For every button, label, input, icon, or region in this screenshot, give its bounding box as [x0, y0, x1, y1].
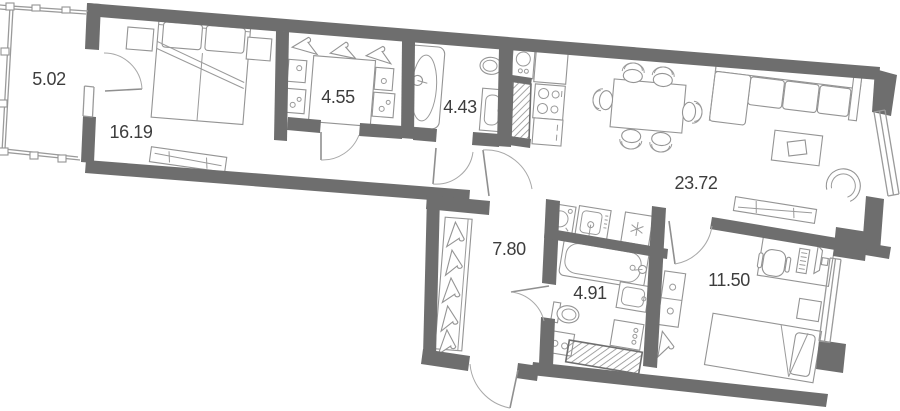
bath-cabinet-icon [610, 320, 644, 351]
room-label-wardrobe: 4.55 [321, 87, 355, 107]
room-label-balcony: 5.02 [32, 69, 66, 89]
coffee-table-icon [771, 130, 822, 166]
hanger-icon [658, 331, 676, 359]
nightstand-icon [797, 298, 822, 321]
room-label-bedroom2: 11.50 [708, 270, 750, 290]
nightstand-icon [246, 37, 272, 61]
balcony-door [104, 53, 142, 91]
furniture-layer [126, 17, 865, 382]
wardrobe-door [321, 132, 359, 160]
kitchen-counter-icon [534, 50, 568, 84]
bedroom-window [83, 86, 94, 117]
floor-plan-canvas: 5.02 16.19 4.55 4.43 23.72 7.80 4.91 11.… [0, 0, 900, 411]
toilet-icon [551, 302, 581, 326]
room-label-bathroom: 4.43 [443, 97, 477, 117]
bathroom2-door [511, 286, 549, 321]
room-label-bedroom: 16.19 [109, 122, 152, 142]
shelf-icon [372, 92, 395, 118]
dining-table-icon [610, 79, 686, 133]
room-label-bathroom2: 4.91 [573, 283, 607, 303]
single-bed-icon [704, 313, 821, 382]
chair-icon [649, 132, 673, 153]
hanger-icon [330, 39, 358, 58]
tv-stand-icon [733, 197, 816, 224]
living-room-window [874, 110, 899, 196]
room-label-hallway: 7.80 [492, 239, 526, 259]
fridge-icon [621, 212, 653, 246]
hall-closet-icon [434, 217, 472, 360]
shelf-icon [374, 67, 394, 90]
chair-icon [619, 129, 643, 150]
kitchen-cabinet-icon [532, 118, 563, 146]
bedroom2-door [669, 221, 712, 264]
hanger-icon [292, 34, 321, 55]
armchair-icon [823, 164, 865, 203]
hallway-door [483, 150, 532, 196]
floor-plan-page: 5.02 16.19 4.55 4.43 23.72 7.80 4.91 11.… [0, 0, 900, 411]
shelf-icon [287, 59, 307, 82]
entry-door [470, 364, 518, 408]
chair-icon [592, 88, 613, 112]
nightstand-icon [126, 27, 154, 51]
bathroom-door [433, 148, 473, 184]
stove-icon [533, 84, 566, 120]
sink-icon [616, 282, 650, 313]
double-bed-icon [151, 17, 251, 124]
room-label-living-kitchen: 23.72 [674, 173, 717, 193]
